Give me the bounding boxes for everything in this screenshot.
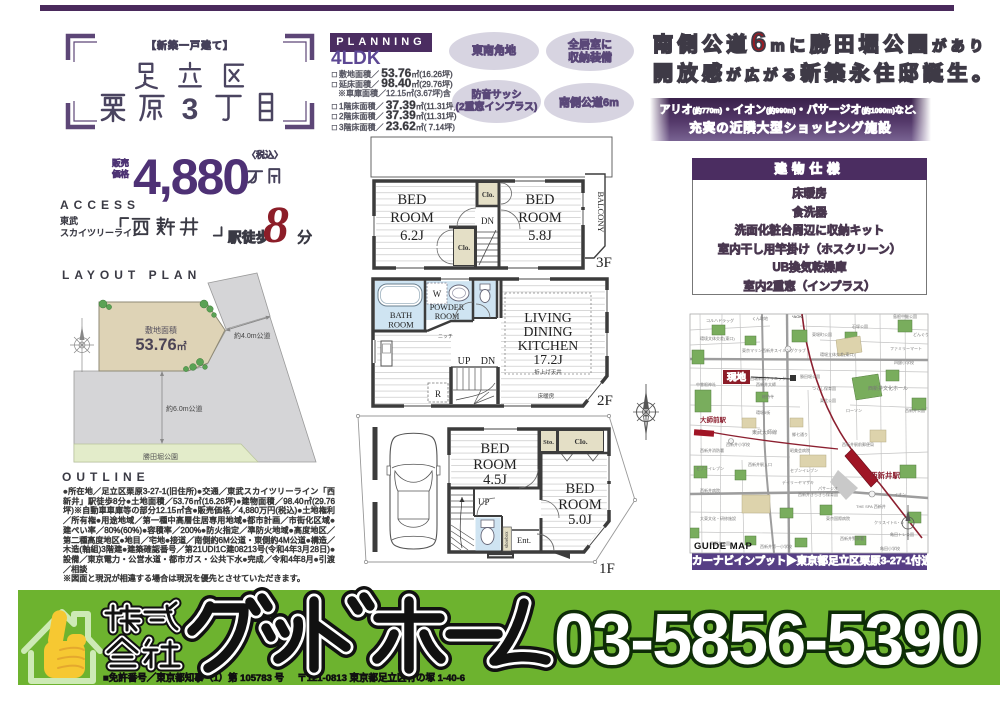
svg-text:西新井駅前郵便局: 西新井駅前郵便局: [842, 441, 874, 447]
svg-text:どんぐり: どんぐり: [913, 331, 929, 337]
svg-text:東武大師線: 東武大師線: [752, 429, 777, 436]
svg-text:セブンイレブン: セブンイレブン: [790, 467, 818, 473]
svg-text:17.2J: 17.2J: [533, 352, 563, 367]
svg-text:BED: BED: [398, 192, 427, 208]
svg-text:3: 3: [182, 93, 199, 126]
svg-text:西新井駅入口: 西新井駅入口: [748, 461, 772, 467]
svg-text:石塚公園: 石塚公園: [852, 323, 868, 329]
svg-text:BALCONY: BALCONY: [596, 191, 606, 232]
svg-text:西新井公園: 西新井公園: [905, 407, 925, 413]
svg-text:BED: BED: [526, 192, 555, 208]
svg-text:Ent.: Ent.: [517, 535, 531, 545]
svg-text:西新井第一小学校: 西新井第一小学校: [760, 543, 792, 549]
svg-text:セブンイレブン: セブンイレブン: [696, 465, 724, 471]
svg-text:西新井大師: 西新井大師: [756, 381, 776, 387]
svg-text:R: R: [435, 389, 441, 399]
svg-text:デイリーヤマザキ: デイリーヤマザキ: [782, 479, 814, 485]
svg-text:四銀小学校: 四銀小学校: [894, 359, 914, 365]
svg-text:西新井文化ホール: 西新井文化ホール: [868, 385, 908, 392]
svg-text:西新井消防署: 西新井消防署: [700, 447, 724, 453]
svg-text:ROOM: ROOM: [473, 457, 517, 473]
svg-text:パサージオ: パサージオ: [818, 486, 838, 491]
svg-text:BED: BED: [566, 481, 595, 497]
svg-text:中曽根神社: 中曽根神社: [696, 381, 716, 387]
svg-text:くん取地: くん取地: [752, 315, 768, 321]
svg-text:西新井小学校: 西新井小学校: [726, 441, 750, 447]
svg-text:東京マリン西新井スイミングクラブ: 東京マリン西新井スイミングクラブ: [742, 347, 806, 353]
svg-text:4.5J: 4.5J: [483, 472, 507, 488]
svg-text:BATH: BATH: [390, 310, 412, 320]
svg-text:ROOM: ROOM: [518, 210, 562, 226]
svg-text:ROOM: ROOM: [558, 497, 602, 513]
svg-text:現地: 現地: [727, 372, 747, 384]
svg-text:栗北公園: 栗北公園: [820, 397, 836, 403]
svg-text:昭美会病院: 昭美会病院: [790, 447, 810, 453]
svg-text:亀田トレ公園: 亀田トレ公園: [890, 531, 914, 537]
svg-text:6.2J: 6.2J: [400, 228, 424, 244]
svg-text:クリスイトS・D: クリスイトS・D: [874, 519, 904, 525]
svg-text:環堀5街: 環堀5街: [756, 409, 770, 415]
svg-text:shoebox: shoebox: [505, 531, 510, 548]
svg-text:03-5856-5390: 03-5856-5390: [554, 600, 978, 680]
svg-text:勝田堀公園: 勝田堀公園: [143, 452, 178, 461]
svg-text:勝田堀公園: 勝田堀公園: [800, 373, 820, 379]
svg-text:GUIDE MAP: GUIDE MAP: [694, 541, 753, 552]
svg-text:UP: UP: [458, 356, 471, 367]
svg-text:大師前駅: 大師前駅: [700, 415, 727, 424]
svg-text:西新井病院: 西新井病院: [700, 487, 720, 493]
svg-text:LIVING: LIVING: [524, 310, 572, 325]
svg-text:DN: DN: [481, 356, 495, 367]
svg-text:Sto.: Sto.: [543, 439, 554, 446]
svg-text:ROOM: ROOM: [390, 210, 434, 226]
svg-text:約6.0m公道: 約6.0m公道: [166, 404, 203, 413]
svg-text:環境文体交差(東口): 環境文体交差(東口): [700, 335, 735, 341]
svg-text:DINING: DINING: [523, 324, 572, 339]
svg-text:つくし保育園: つくし保育園: [812, 385, 836, 391]
svg-text:2F: 2F: [597, 393, 613, 409]
svg-text:亀田小学校: 亀田小学校: [880, 545, 900, 551]
svg-text:THE SPA 西新井: THE SPA 西新井: [856, 503, 886, 509]
svg-text:ニッチ: ニッチ: [438, 334, 453, 340]
svg-text:西新井警察署: 西新井警察署: [840, 535, 864, 541]
svg-text:5.8J: 5.8J: [528, 228, 552, 244]
svg-text:*AOKI: *AOKI: [792, 314, 803, 319]
svg-text:イオン: イオン: [894, 492, 906, 497]
svg-text:W: W: [433, 289, 442, 299]
svg-text:敷地面積: 敷地面積: [145, 325, 177, 335]
svg-text:西新井きらきら保育園: 西新井きらきら保育園: [798, 491, 838, 497]
svg-text:5.0J: 5.0J: [568, 512, 592, 528]
svg-text:コルハドラッグ: コルハドラッグ: [706, 317, 734, 323]
svg-text:東堀町公園: 東堀町公園: [812, 331, 832, 337]
svg-text:折上げ天井: 折上げ天井: [534, 368, 562, 376]
svg-text:BED: BED: [481, 441, 510, 457]
svg-text:Clo.: Clo.: [574, 437, 587, 446]
svg-text:Clo.: Clo.: [458, 244, 471, 252]
svg-text:ローソン: ローソン: [846, 408, 862, 413]
svg-text:KITCHEN: KITCHEN: [518, 338, 579, 353]
svg-text:ROOM: ROOM: [388, 320, 414, 330]
svg-text:総持寺: 総持寺: [762, 393, 774, 399]
svg-text:3F: 3F: [596, 255, 612, 271]
svg-text:ファミリーマート: ファミリーマート: [890, 346, 922, 351]
svg-text:Clo.: Clo.: [482, 191, 495, 199]
svg-text:床暖房: 床暖房: [538, 392, 555, 400]
svg-text:約4.0m公道: 約4.0m公道: [234, 331, 271, 340]
svg-text:大東文化・研修施設: 大東文化・研修施設: [700, 515, 736, 521]
svg-text:東京国際病院: 東京国際病院: [826, 515, 850, 521]
svg-text:郷七通り: 郷七通り: [792, 431, 808, 437]
svg-text:環堀立体交差(東口): 環堀立体交差(東口): [820, 351, 855, 357]
svg-text:1F: 1F: [599, 561, 615, 577]
svg-text:DN: DN: [481, 216, 494, 226]
svg-text:西新井駅: 西新井駅: [870, 470, 900, 480]
